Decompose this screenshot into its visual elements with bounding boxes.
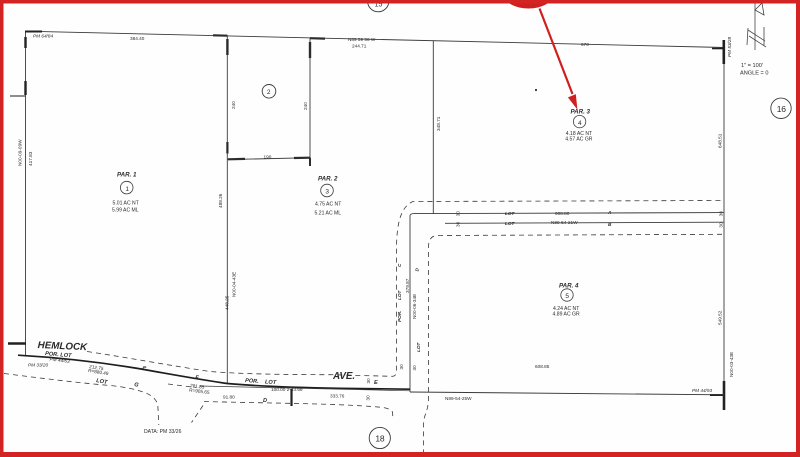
svg-text:5.21 AC ML: 5.21 AC ML: [315, 211, 342, 217]
svg-text:PM 44/93: PM 44/93: [692, 388, 712, 393]
svg-text:N00-03-43E: N00-03-43E: [729, 352, 734, 377]
svg-text:417.83: 417.83: [28, 151, 33, 166]
svg-text:379.87: 379.87: [405, 278, 410, 293]
svg-text:A: A: [607, 210, 612, 215]
svg-text:608.80: 608.80: [555, 211, 570, 216]
svg-text:549.52: 549.52: [718, 310, 723, 325]
svg-text:30: 30: [412, 365, 417, 371]
svg-text:4.89 AC GR: 4.89 AC GR: [553, 312, 581, 318]
svg-text:5.99 AC ML: 5.99 AC ML: [112, 207, 139, 213]
svg-text:PAR. 1: PAR. 1: [117, 172, 137, 179]
svg-text:333.76: 333.76: [330, 394, 345, 399]
svg-text:LOT: LOT: [505, 211, 516, 216]
svg-text:1" = 100': 1" = 100': [741, 63, 763, 69]
svg-text:PAR. 2: PAR. 2: [318, 175, 338, 182]
svg-text:670: 670: [581, 42, 589, 47]
svg-text:100.00 2-43.69: 100.00 2-43.69: [271, 387, 303, 392]
svg-text:ANGLE = 0: ANGLE = 0: [740, 71, 768, 77]
svg-text:240: 240: [303, 102, 308, 110]
svg-text:DATA: PM 33/26: DATA: PM 33/26: [144, 429, 182, 435]
svg-text:91.80: 91.80: [223, 395, 235, 400]
svg-text:3: 3: [325, 189, 329, 196]
svg-text:30: 30: [399, 364, 404, 370]
svg-text:N00-04-43E: N00-04-43E: [232, 272, 237, 297]
svg-text:5.01 AC NT: 5.01 AC NT: [113, 200, 139, 206]
svg-text:PM 33/20: PM 33/20: [28, 363, 48, 368]
svg-text:608.85: 608.85: [535, 364, 550, 369]
svg-text:30: 30: [366, 395, 371, 401]
svg-text:16: 16: [777, 104, 786, 114]
svg-text:N89-54-25W: N89-54-25W: [445, 396, 472, 401]
svg-text:PAR. 3: PAR. 3: [571, 109, 591, 116]
svg-text:4: 4: [578, 120, 582, 127]
svg-text:190: 190: [264, 154, 272, 159]
svg-text:30: 30: [456, 211, 461, 217]
svg-text:LOT: LOT: [416, 341, 421, 352]
svg-text:30: 30: [366, 378, 371, 384]
svg-text:4.75 AC NT: 4.75 AC NT: [315, 202, 341, 208]
svg-text:N89-54-21W: N89-54-21W: [551, 220, 578, 225]
svg-text:648.51: 648.51: [718, 133, 723, 148]
svg-text:488.26: 488.26: [218, 193, 223, 208]
svg-text:POR.: POR.: [397, 311, 402, 322]
svg-text:244.71: 244.71: [352, 44, 367, 49]
svg-text:LOT: LOT: [505, 221, 516, 226]
svg-text:D: D: [263, 398, 267, 404]
svg-text:348.71: 348.71: [436, 116, 441, 131]
svg-text:30: 30: [719, 222, 724, 228]
svg-text:18: 18: [375, 434, 384, 444]
svg-text:LOT: LOT: [397, 289, 402, 300]
svg-text:PM 53/28: PM 53/28: [727, 37, 732, 57]
svg-text:2: 2: [267, 89, 271, 96]
svg-text:240: 240: [231, 101, 236, 109]
svg-text:4.57 AC GR: 4.57 AC GR: [565, 137, 593, 143]
svg-text:30: 30: [719, 211, 724, 217]
svg-text:PM 64/84: PM 64/84: [33, 34, 53, 39]
svg-text:448.25: 448.25: [225, 295, 230, 310]
svg-text:5: 5: [565, 293, 569, 300]
svg-text:N89 59 56 W: N89 59 56 W: [348, 37, 376, 42]
svg-text:N00-06-34E: N00-06-34E: [412, 294, 417, 319]
svg-text:AVE.: AVE.: [332, 371, 355, 382]
svg-text:384.40: 384.40: [130, 36, 145, 41]
svg-text:30: 30: [456, 221, 461, 227]
svg-text:E: E: [374, 380, 378, 386]
svg-text:1: 1: [125, 186, 129, 193]
svg-text:PAR. 4: PAR. 4: [559, 282, 579, 289]
svg-text:N00-09-09W: N00-09-09W: [18, 139, 23, 166]
